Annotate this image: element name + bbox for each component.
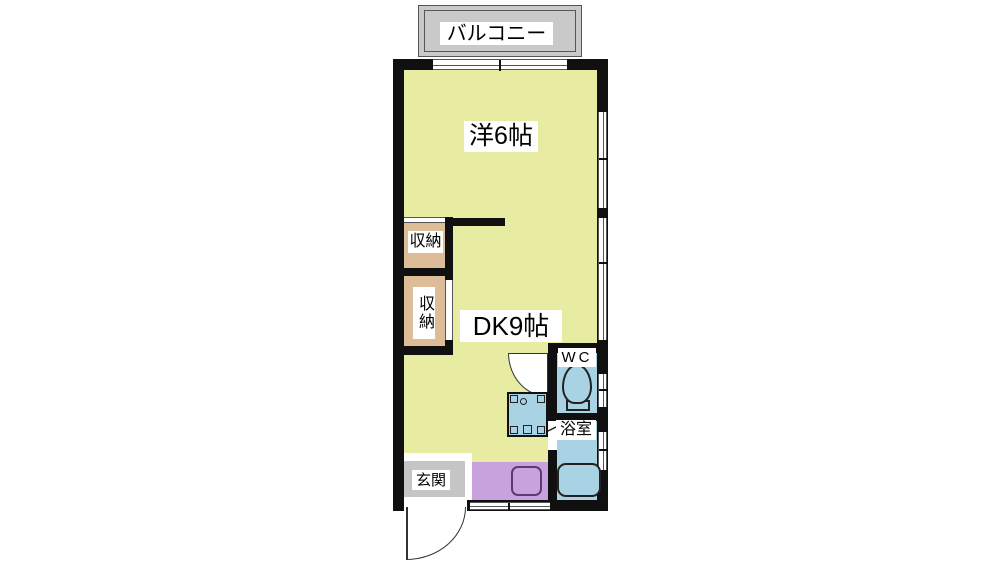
west-room-window-2 (598, 218, 607, 340)
toilet-icon (560, 364, 596, 412)
balcony-window (433, 59, 567, 70)
closet-lower-label: 収納 (413, 287, 435, 339)
wall-partition-west-dk (445, 218, 505, 226)
western-room-label: 洋6帖 (464, 121, 538, 152)
closet-upper-label: 収納 (408, 231, 443, 253)
balcony-label: バルコニー (440, 22, 553, 45)
bath-window (598, 432, 607, 470)
bathtub-icon (557, 463, 601, 497)
entrance-label: 玄関 (412, 470, 450, 490)
closet-lower-sliding-door (445, 280, 453, 340)
floor-plan: バルコニー 洋6帖 DK9帖 収納 収納 WC 浴室 玄関 (0, 0, 1000, 562)
kitchen-sink-icon (511, 466, 542, 496)
wall-left (393, 59, 404, 511)
washbasin-icon (507, 392, 548, 437)
wc-label: WC (558, 348, 596, 367)
bath-label: 浴室 (556, 420, 596, 440)
dk-label: DK9帖 (460, 310, 562, 342)
west-room-window-1 (598, 112, 607, 208)
wall-bath-left (548, 450, 557, 500)
kitchen-window (470, 502, 550, 510)
wall-closet-divider (404, 268, 453, 276)
wall-closet-bottom (393, 346, 453, 355)
entrance-door-swing-icon (406, 507, 466, 560)
wall-wc-left (548, 343, 557, 421)
closet-upper-sliding-door (404, 217, 445, 223)
wc-window (598, 374, 607, 407)
